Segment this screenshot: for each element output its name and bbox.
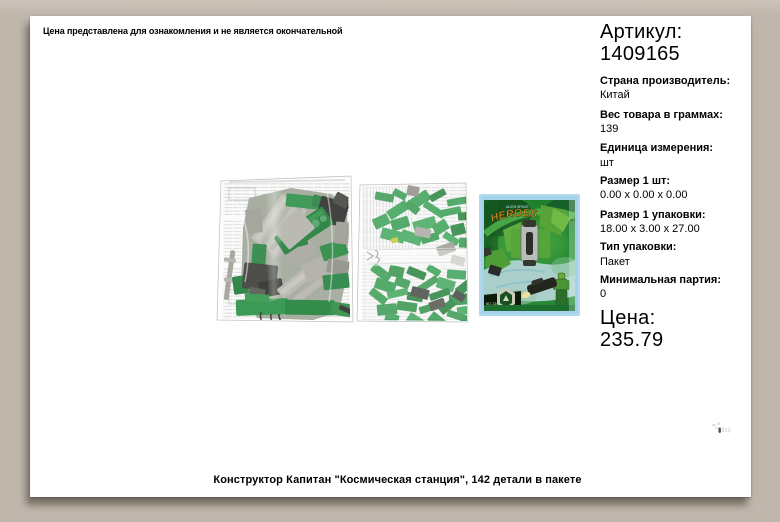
svg-text:ALIEN SPACE: ALIEN SPACE: [506, 205, 529, 209]
